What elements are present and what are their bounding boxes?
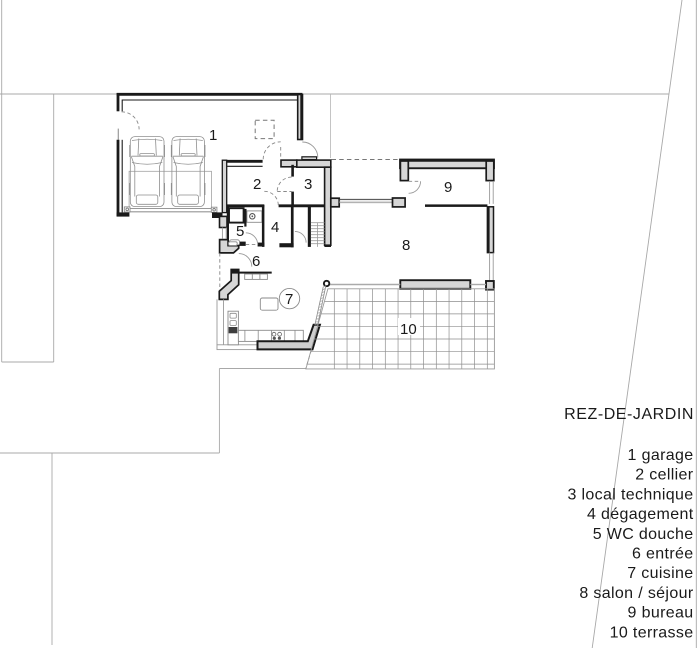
svg-text:6 entrée: 6 entrée: [632, 546, 694, 563]
svg-text:2: 2: [253, 176, 261, 193]
svg-text:8: 8: [402, 237, 410, 254]
svg-text:9 bureau: 9 bureau: [628, 605, 694, 622]
svg-text:3: 3: [304, 176, 312, 193]
svg-text:7 cuisine: 7 cuisine: [627, 565, 693, 582]
svg-text:1: 1: [209, 127, 217, 144]
svg-text:10: 10: [400, 321, 417, 338]
svg-text:7: 7: [285, 291, 293, 308]
svg-text:1 garage: 1 garage: [628, 447, 694, 464]
svg-text:4: 4: [271, 219, 279, 236]
svg-text:6: 6: [252, 253, 260, 270]
svg-text:8 salon / séjour: 8 salon / séjour: [579, 585, 693, 602]
svg-text:5: 5: [236, 223, 244, 240]
svg-text:9: 9: [444, 179, 452, 196]
svg-text:5 WC douche: 5 WC douche: [593, 526, 694, 543]
svg-text:3 local technique: 3 local technique: [567, 486, 693, 503]
svg-text:REZ-DE-JARDIN: REZ-DE-JARDIN: [564, 406, 694, 423]
svg-text:10 terrasse: 10 terrasse: [610, 624, 694, 641]
svg-text:4 dégagement: 4 dégagement: [587, 506, 694, 523]
svg-text:2 cellier: 2 cellier: [635, 467, 694, 484]
